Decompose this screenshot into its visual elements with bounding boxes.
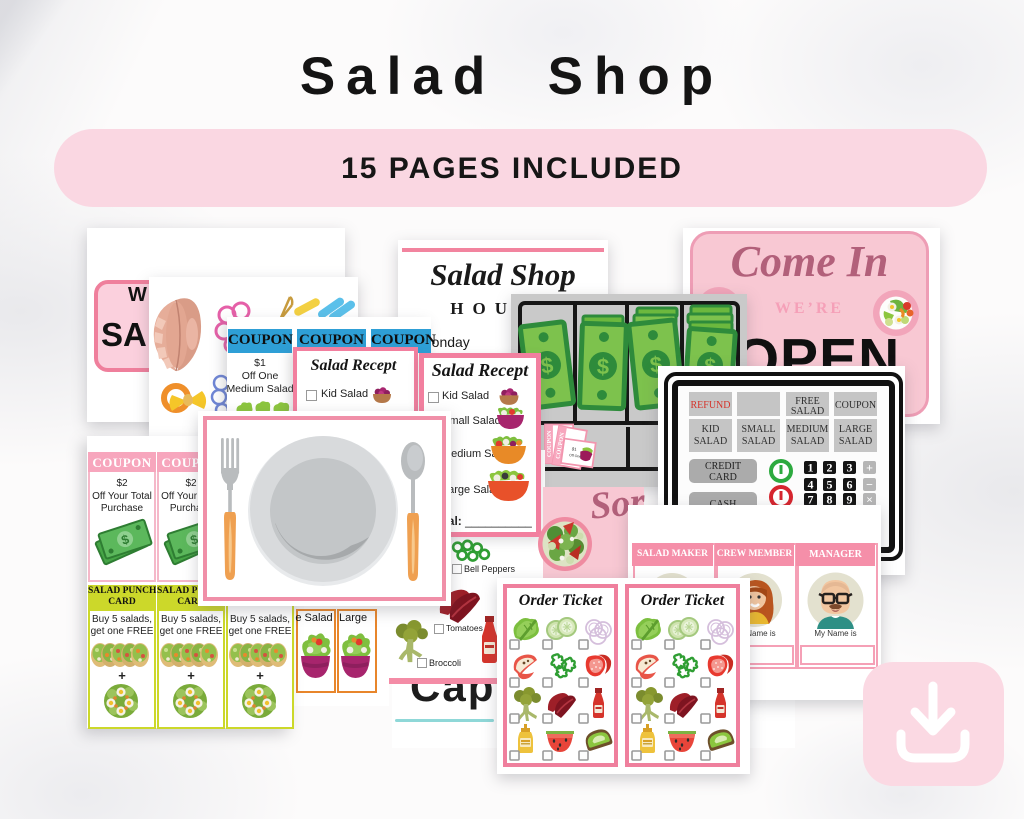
svg-text:2: 2 <box>827 461 833 475</box>
svg-text:SALAD: SALAD <box>742 436 775 447</box>
svg-text:4: 4 <box>808 478 814 492</box>
svg-text:1: 1 <box>808 461 814 475</box>
svg-text:KID: KID <box>702 424 720 435</box>
svg-text:SMALL: SMALL <box>742 424 776 435</box>
svg-text:−: − <box>866 478 873 492</box>
svg-text:SALAD: SALAD <box>791 436 824 447</box>
svg-text:REFUND: REFUND <box>690 400 730 411</box>
svg-text:COUPON: COUPON <box>835 400 876 411</box>
svg-text:LARGE: LARGE <box>839 424 872 435</box>
svg-text:COUPON: COUPON <box>547 430 553 457</box>
svg-text:SALAD: SALAD <box>839 436 872 447</box>
svg-text:$: $ <box>596 354 609 379</box>
svg-text:3: 3 <box>847 461 853 475</box>
svg-text:SALAD: SALAD <box>694 436 727 447</box>
svg-text:+: + <box>866 461 873 475</box>
svg-text:MEDIUM: MEDIUM <box>787 424 829 435</box>
svg-text:SALAD: SALAD <box>791 406 824 417</box>
svg-text:CARD: CARD <box>709 472 737 483</box>
svg-text:5: 5 <box>827 478 833 492</box>
svg-text:CREDIT: CREDIT <box>705 461 741 472</box>
svg-text:6: 6 <box>847 478 853 492</box>
